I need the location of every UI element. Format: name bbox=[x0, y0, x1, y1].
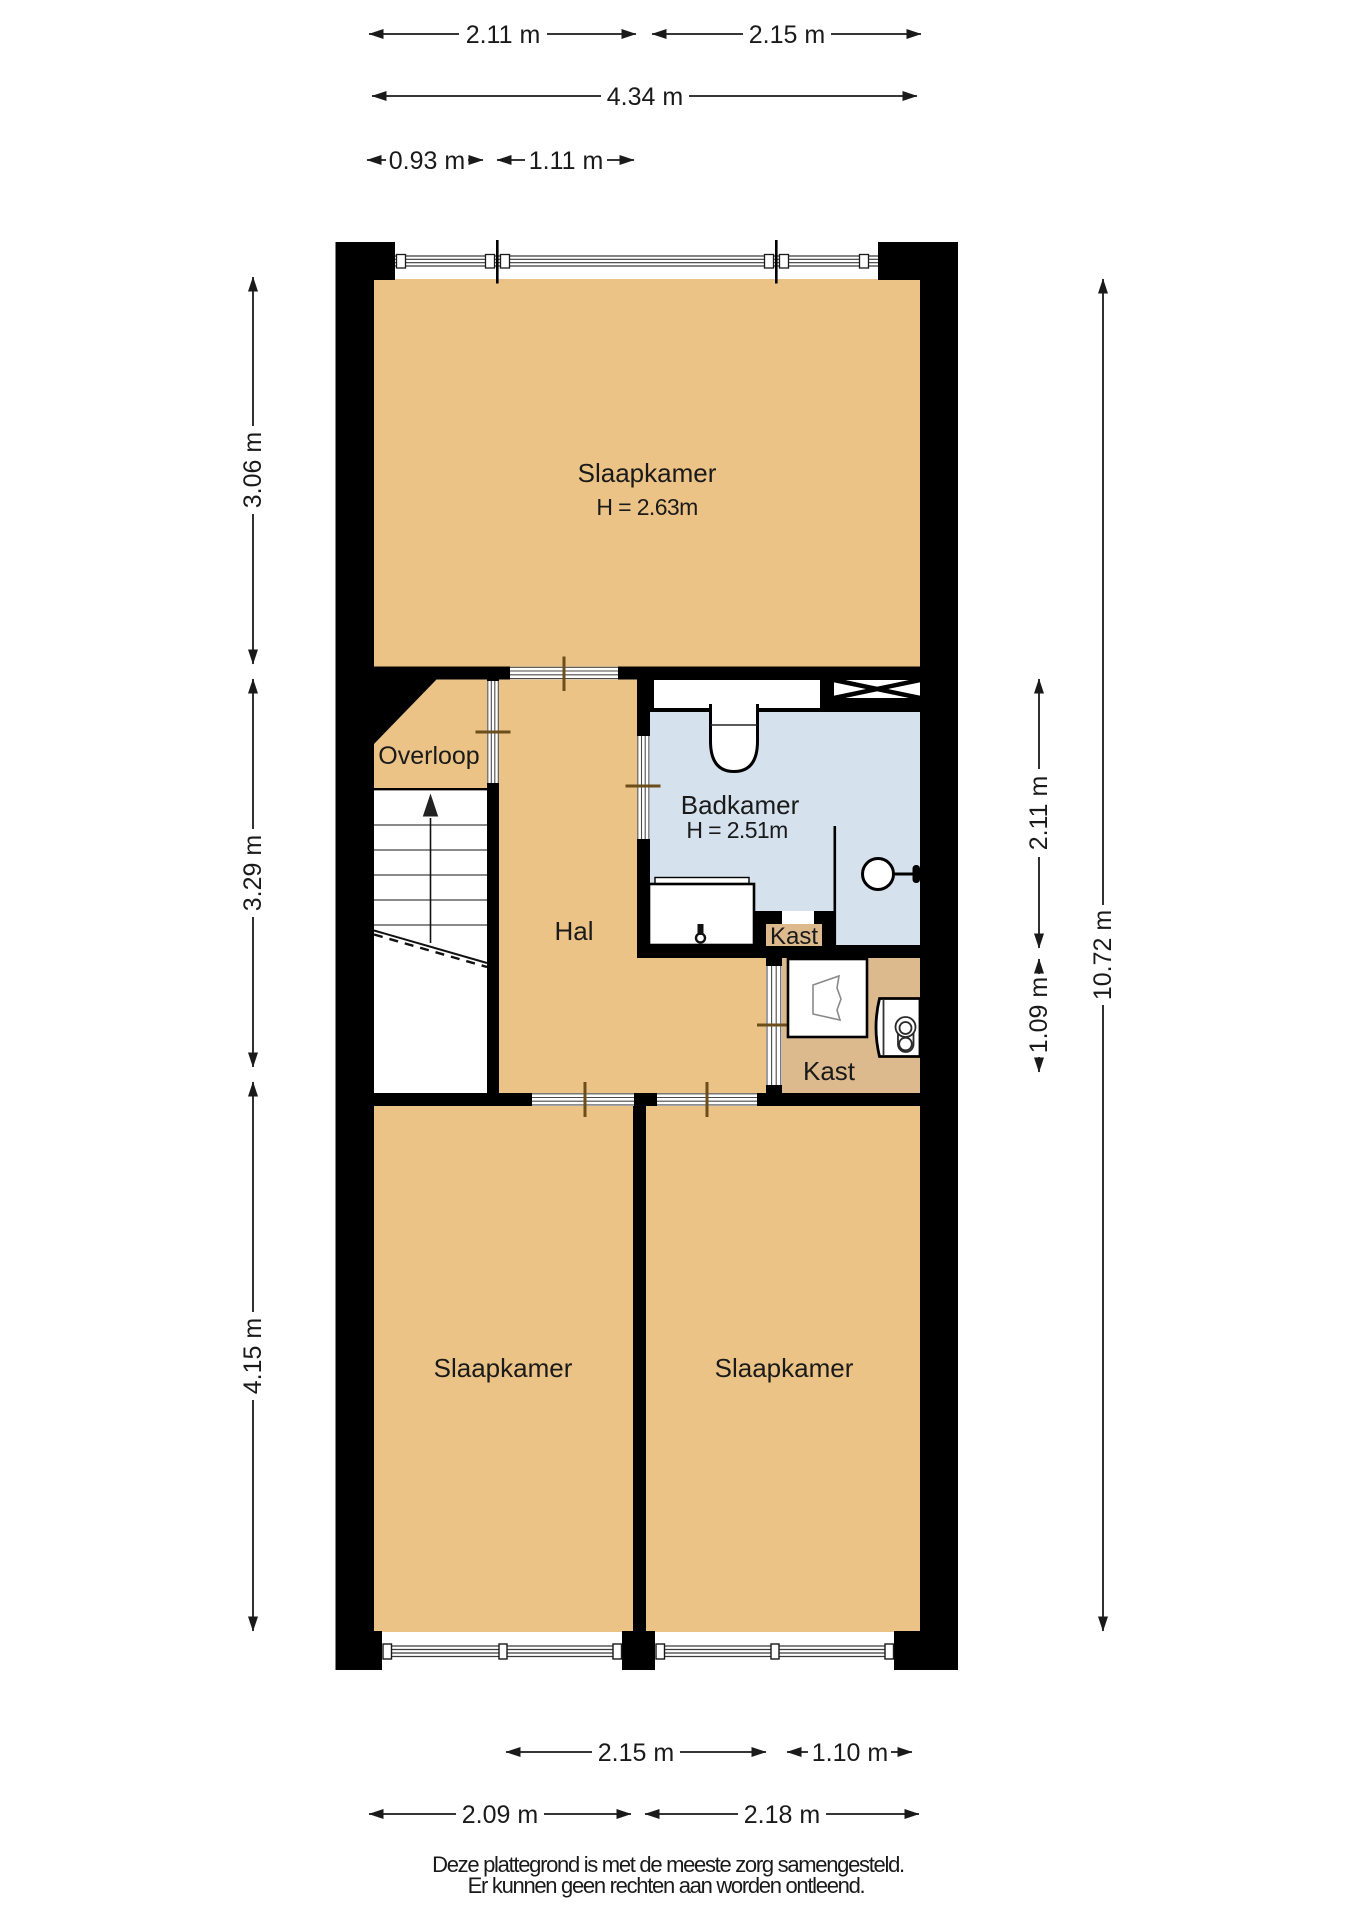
svg-text:H = 2.63m: H = 2.63m bbox=[596, 494, 697, 520]
svg-text:2.11 m: 2.11 m bbox=[1025, 776, 1053, 851]
svg-text:4.15 m: 4.15 m bbox=[239, 1318, 267, 1394]
svg-text:10.72 m: 10.72 m bbox=[1089, 910, 1117, 1000]
svg-text:Overloop: Overloop bbox=[378, 742, 479, 770]
svg-text:0.93 m: 0.93 m bbox=[389, 147, 465, 175]
svg-text:2.09 m: 2.09 m bbox=[462, 1801, 538, 1829]
svg-text:4.34 m: 4.34 m bbox=[607, 83, 683, 111]
svg-text:H = 2.51m: H = 2.51m bbox=[686, 817, 787, 843]
svg-text:Slaapkamer: Slaapkamer bbox=[715, 1353, 854, 1383]
svg-text:Slaapkamer: Slaapkamer bbox=[434, 1353, 573, 1383]
svg-text:2.11 m: 2.11 m bbox=[466, 21, 541, 49]
svg-text:2.15 m: 2.15 m bbox=[598, 1739, 674, 1767]
svg-text:Hal: Hal bbox=[554, 916, 593, 946]
svg-text:1.11 m: 1.11 m bbox=[529, 147, 604, 175]
svg-text:1.09 m: 1.09 m bbox=[1025, 977, 1053, 1053]
svg-text:2.15 m: 2.15 m bbox=[749, 21, 825, 49]
svg-text:1.10 m: 1.10 m bbox=[812, 1739, 888, 1767]
svg-text:2.18 m: 2.18 m bbox=[744, 1801, 820, 1829]
svg-text:3.06 m: 3.06 m bbox=[239, 432, 267, 508]
svg-text:Kast: Kast bbox=[803, 1056, 856, 1086]
svg-text:Er kunnen geen rechten aan wor: Er kunnen geen rechten aan worden ontlee… bbox=[468, 1873, 865, 1898]
svg-text:Slaapkamer: Slaapkamer bbox=[578, 458, 717, 488]
svg-text:Badkamer: Badkamer bbox=[681, 790, 800, 820]
svg-text:3.29 m: 3.29 m bbox=[239, 835, 267, 911]
svg-text:Kast: Kast bbox=[770, 923, 818, 950]
